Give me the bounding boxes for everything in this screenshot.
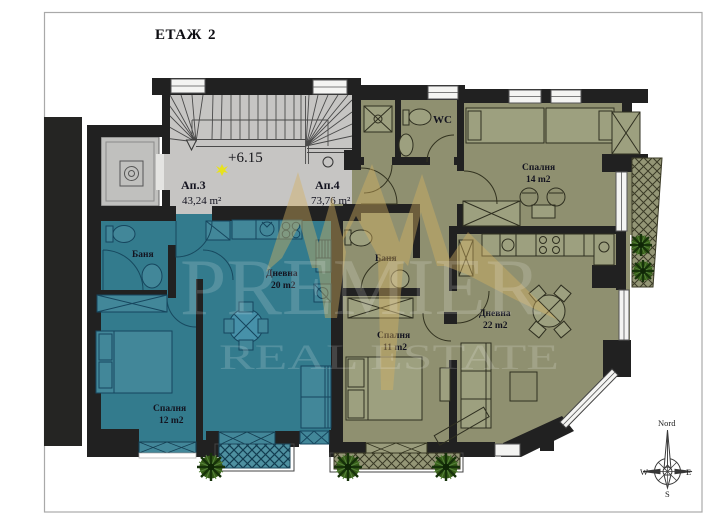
svg-text:43,24 m²: 43,24 m² [182, 195, 222, 207]
svg-text:14 m2: 14 m2 [526, 175, 551, 185]
svg-text:E: E [686, 467, 691, 477]
svg-text:W: W [640, 467, 648, 477]
svg-text:12 m2: 12 m2 [159, 416, 184, 426]
svg-text:Спалня: Спалня [522, 163, 555, 173]
svg-text:Баня: Баня [132, 250, 154, 260]
svg-text:WC: WC [433, 114, 452, 126]
svg-text:REAL ESTATE: REAL ESTATE [219, 337, 559, 377]
svg-text:Ап.4: Ап.4 [315, 178, 340, 192]
svg-text:Спалня: Спалня [153, 404, 186, 414]
svg-text:Ап.3: Ап.3 [181, 178, 206, 192]
svg-text:Nord: Nord [658, 418, 676, 428]
svg-text:PREMIER: PREMIER [180, 244, 542, 332]
svg-text:+6.15: +6.15 [228, 150, 263, 166]
svg-text:S: S [665, 489, 670, 499]
